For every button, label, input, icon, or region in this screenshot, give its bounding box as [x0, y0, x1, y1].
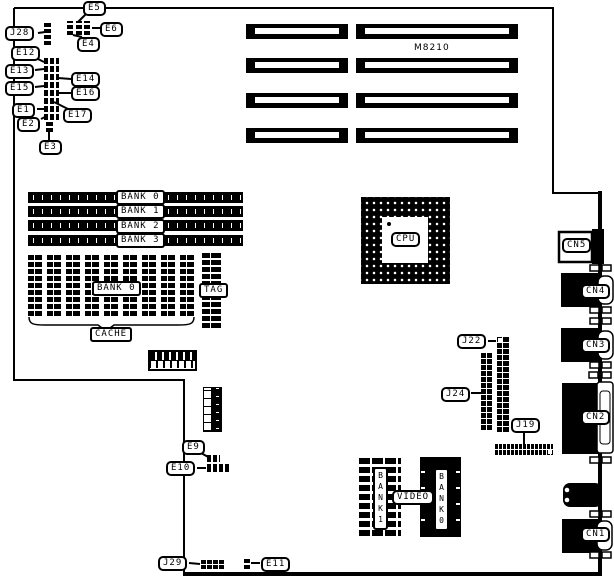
power-connector-sockets: [150, 360, 195, 368]
cpu-pin1-dot: [387, 222, 391, 226]
cn1-label: CN1: [581, 527, 610, 542]
expansion-slot-1-right: [356, 24, 518, 39]
video-bank0-label: BANK0: [434, 468, 449, 531]
e13-jumper: [44, 66, 59, 72]
cache-label: CACHE: [90, 327, 132, 342]
cache-chip-column: [28, 253, 42, 318]
expansion-slot-1-left: [246, 24, 348, 39]
j19-label: J19: [511, 418, 540, 433]
j28-jumper: [44, 22, 51, 45]
aux-connector-sockets: [203, 387, 212, 432]
e1-jumper: [44, 106, 59, 112]
audio-jack-hole-2: [565, 498, 570, 503]
e17-label: E17: [63, 108, 92, 123]
simm-bank2-label: BANK 2: [116, 219, 165, 234]
video-label: VIDEO: [392, 490, 434, 505]
cpu-label: CPU: [391, 232, 420, 247]
e11-jumper: [244, 557, 250, 569]
simm-bank3-label: BANK 3: [116, 233, 165, 248]
board-model-text: M8210: [414, 43, 450, 53]
e9-label: E9: [182, 440, 205, 455]
e10-label: E10: [166, 461, 195, 476]
cache-chip-column: [66, 253, 80, 318]
aux-connector-pins: [212, 387, 222, 432]
expansion-slot-2-left: [246, 58, 348, 73]
e15-label: E15: [5, 81, 34, 96]
cache-bank-label: BANK 0: [92, 281, 141, 296]
cn3-label: CN3: [581, 338, 610, 353]
j19-header-strip: [494, 444, 553, 455]
e12-jumper: [44, 58, 59, 64]
e2-label: E2: [17, 117, 40, 132]
e14-leader: [58, 78, 71, 79]
cn5-label: CN5: [562, 238, 591, 253]
cache-chip-column: [161, 253, 175, 318]
e3-jumper: [46, 121, 53, 132]
audio-jack-block: [563, 483, 602, 507]
expansion-slot-2-right: [356, 58, 518, 73]
cache-chip-column: [142, 253, 156, 318]
j22-header-strip: [497, 337, 509, 433]
e1-label: E1: [12, 103, 35, 118]
e12-label: E12: [11, 46, 40, 61]
e2-jumper: [44, 114, 59, 120]
e14-label: E14: [71, 72, 100, 87]
tag-label: TAG: [199, 283, 228, 298]
aux-connector: [203, 387, 223, 432]
e4-jumper: [67, 21, 73, 35]
j24-label: J24: [441, 387, 470, 402]
motherboard-diagram: M8210 BANK 0 BANK 1 BANK 2 BANK 3 BANK 0…: [0, 0, 614, 582]
cn5-edge-block: [592, 229, 604, 264]
j24-header-strip: [481, 352, 492, 431]
j29-label: J29: [158, 556, 187, 571]
e15-jumper: [44, 82, 59, 88]
rear-panel: [559, 229, 613, 558]
expansion-slot-3-right: [356, 93, 518, 108]
expansion-slot-4-right: [356, 128, 518, 143]
power-connector: [148, 350, 197, 371]
e11-label: E11: [261, 557, 290, 572]
e17-jumper: [44, 98, 59, 104]
cn2-label: CN2: [581, 410, 610, 425]
expansion-slot-3-left: [246, 93, 348, 108]
j28-label: J28: [5, 26, 34, 41]
e5-label: E5: [83, 1, 106, 16]
e13-label: E13: [5, 64, 34, 79]
e16-jumper: [44, 90, 59, 96]
cache-chip-column: [47, 253, 61, 318]
j29-connector: [200, 559, 224, 570]
power-connector-pins: [150, 352, 195, 360]
e6-label: E6: [100, 22, 123, 37]
expansion-slot-4-left: [246, 128, 348, 143]
j29-leader: [189, 563, 200, 564]
e10-jumper: [207, 464, 231, 472]
j22-label: J22: [457, 334, 486, 349]
audio-jack-hole-1: [565, 488, 570, 493]
e6-jumper: [84, 21, 90, 35]
cache-chip-column: [180, 253, 194, 318]
e13-leader: [35, 69, 44, 70]
simm-bank0-label: BANK 0: [116, 190, 165, 205]
e5-jumper: [76, 21, 82, 35]
e9-jumper: [207, 455, 220, 462]
e15-leader: [35, 86, 44, 87]
cn4-label: CN4: [581, 284, 610, 299]
video-bank1-label: BANK1: [373, 467, 388, 530]
e16-label: E16: [71, 86, 100, 101]
e4-label: E4: [77, 37, 100, 52]
simm-bank1-label: BANK 1: [116, 204, 165, 219]
j22-key-pin: [498, 338, 502, 342]
j19-key-pin: [548, 450, 552, 454]
e14-jumper: [44, 74, 59, 80]
e3-label: E3: [39, 140, 62, 155]
